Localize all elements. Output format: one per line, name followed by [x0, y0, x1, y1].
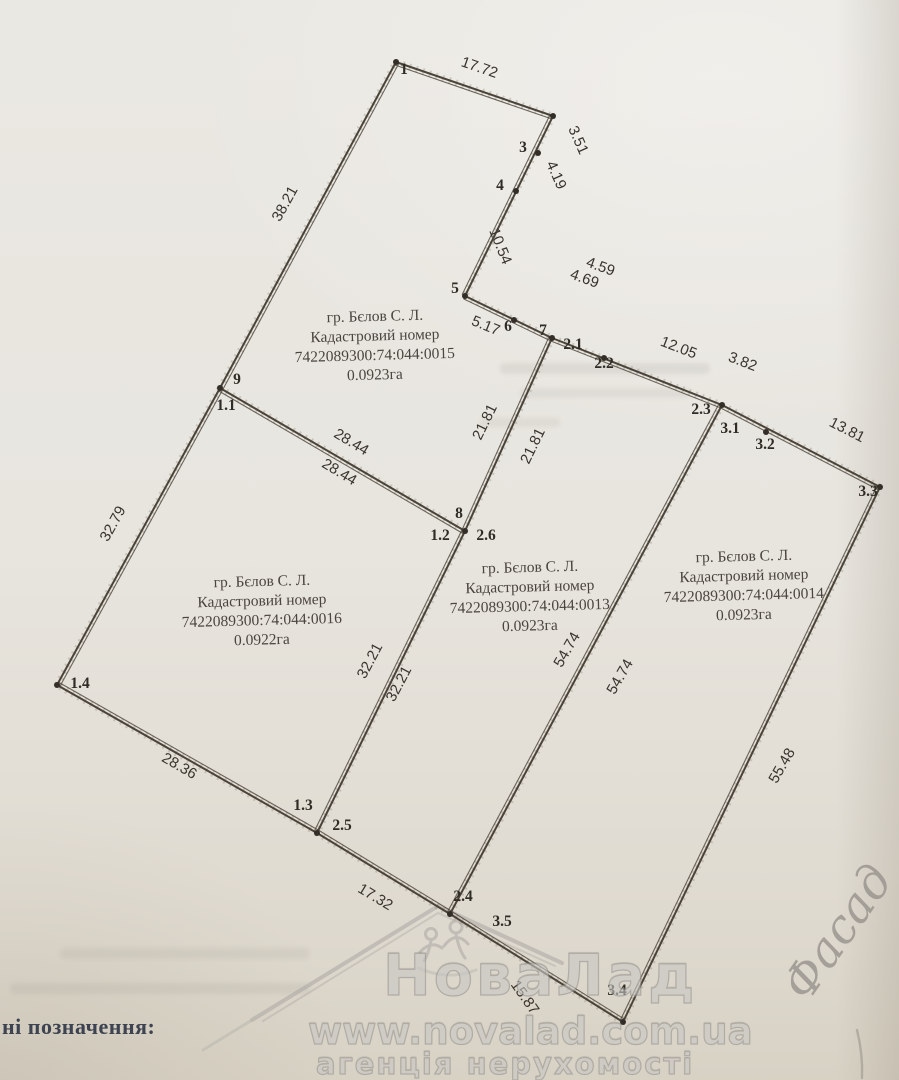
- dimension-label: 32.21: [354, 640, 387, 681]
- survey-point: [549, 335, 555, 341]
- boundary-line: [57, 685, 317, 833]
- point-label: 2.6: [476, 527, 496, 544]
- point-label: 6: [504, 318, 512, 335]
- survey-point: [447, 911, 453, 917]
- boundary-line: [465, 116, 553, 296]
- point-label: 3.3: [858, 483, 878, 500]
- survey-point: [217, 385, 223, 391]
- boundary-line-inner: [59, 682, 319, 830]
- point-label: 3.4: [607, 982, 627, 999]
- survey-point: [462, 528, 468, 534]
- parcel-info-line: 0.0922га: [234, 631, 290, 649]
- survey-point: [462, 293, 468, 299]
- dimension-label: 13.81: [826, 414, 867, 446]
- parcel-info-line: 0.0923га: [502, 617, 558, 635]
- point-label: 3.5: [492, 913, 512, 930]
- point-label: 1.4: [70, 675, 90, 692]
- dimension-label: 38.21: [269, 183, 302, 224]
- parcel-info-line: Кадастровий номер: [310, 326, 440, 346]
- boundary-line-inner: [462, 115, 550, 295]
- parcel-info-line: гр. Бєлов С. Л.: [326, 307, 423, 327]
- dimension-label: 54.74: [550, 629, 583, 670]
- bleed-through-smudges: [10, 363, 710, 994]
- point-label: 4: [496, 177, 504, 194]
- dimension-label: 17.72: [459, 54, 500, 82]
- dimension-label: 3.51: [564, 123, 591, 157]
- point-label: 1.2: [430, 527, 450, 544]
- point-label: 9: [233, 371, 241, 388]
- point-label: 5: [451, 280, 459, 297]
- point-label: 2.3: [691, 401, 711, 418]
- survey-point: [877, 484, 883, 490]
- legend-label: ні позначення:: [2, 1014, 155, 1040]
- dimension-label: 15.87: [507, 977, 542, 1018]
- parcel-info-line: Кадастровий номер: [679, 566, 809, 586]
- point-label: 3.1: [720, 420, 739, 437]
- parcel-info-line: гр. Бєлов С. Л.: [213, 572, 310, 592]
- parcel-info-line: 0.0923га: [347, 366, 403, 384]
- parcel-info-line: гр. Бєлов С. Л.: [481, 558, 578, 578]
- survey-point: [550, 113, 556, 119]
- dimension-label: 12.05: [658, 333, 699, 362]
- point-label: 1.3: [293, 797, 313, 814]
- boundary-line-inner: [60, 390, 223, 687]
- parcel-info-line: 7422089300:74:044:0014: [664, 585, 825, 606]
- boundary-line-inner: [314, 530, 462, 832]
- parcel-info-line: Кадастровий номер: [465, 577, 595, 597]
- dimension-label: 17.32: [355, 880, 396, 914]
- survey-point: [314, 830, 320, 836]
- dimension-label: 4.19: [542, 158, 569, 192]
- pencil-stroke: [857, 1030, 862, 1078]
- dimension-label: 54.74: [603, 656, 636, 697]
- survey-point: [513, 188, 519, 194]
- boundary-line: [57, 388, 220, 685]
- survey-point: [719, 402, 725, 408]
- dimension-label: 3.82: [726, 349, 759, 375]
- boundary-line: [722, 405, 880, 487]
- parcel-info-line: 7422089300:74:044:0015: [295, 345, 456, 366]
- survey-point: [54, 682, 60, 688]
- point-label: 1.1: [216, 397, 235, 414]
- cadastral-plan-drawing: 134567981.11.22.61.32.51.42.12.22.33.13.…: [0, 0, 899, 1080]
- survey-point: [620, 1019, 626, 1025]
- parcel-info-line: 7422089300:74:044:0016: [182, 610, 343, 631]
- parcel-info-line: гр. Бєлов С. Л.: [695, 547, 792, 567]
- dimension-label: 5.17: [469, 312, 502, 339]
- boundary-line: [220, 388, 465, 531]
- point-label: 1: [400, 61, 408, 78]
- dimension-label: 21.81: [517, 425, 549, 466]
- scanned-cadastral-document: 134567981.11.22.61.32.51.42.12.22.33.13.…: [0, 0, 899, 1080]
- boundary-line-inner: [721, 408, 879, 490]
- point-label: 2.5: [332, 817, 352, 834]
- parcel-info-line: Кадастровий номер: [197, 591, 327, 611]
- point-label: 2.1: [563, 336, 582, 353]
- survey-point: [763, 429, 769, 435]
- point-label: 7: [539, 322, 547, 339]
- survey-point: [393, 59, 399, 65]
- dimension-label: 28.44: [319, 455, 360, 489]
- dimension-label: 32.21: [383, 663, 416, 704]
- point-label: 3.2: [755, 436, 775, 453]
- point-label: 2.2: [594, 355, 614, 372]
- point-label: 8: [455, 505, 463, 522]
- parcel-info-line: 7422089300:74:044:0013: [450, 596, 611, 617]
- point-label: 3: [519, 139, 527, 156]
- survey-point: [535, 150, 541, 156]
- point-label: 2.4: [453, 888, 473, 905]
- dimension-label: 55.48: [765, 745, 798, 786]
- parcel-info-line: 0.0923га: [716, 606, 772, 624]
- survey-point: [511, 317, 517, 323]
- dimension-label: 32.79: [97, 503, 130, 544]
